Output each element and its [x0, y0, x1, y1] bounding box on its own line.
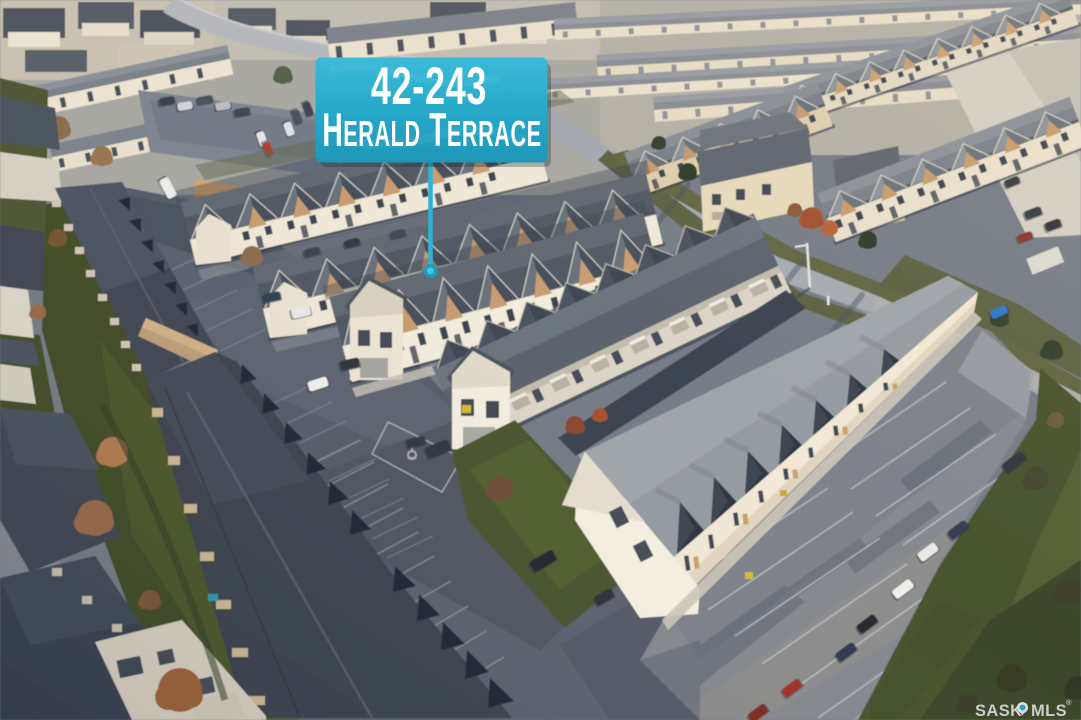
- svg-text:®: ®: [1066, 698, 1072, 707]
- svg-text:SASK: SASK: [975, 702, 1022, 720]
- svg-text:MLS: MLS: [1031, 702, 1067, 720]
